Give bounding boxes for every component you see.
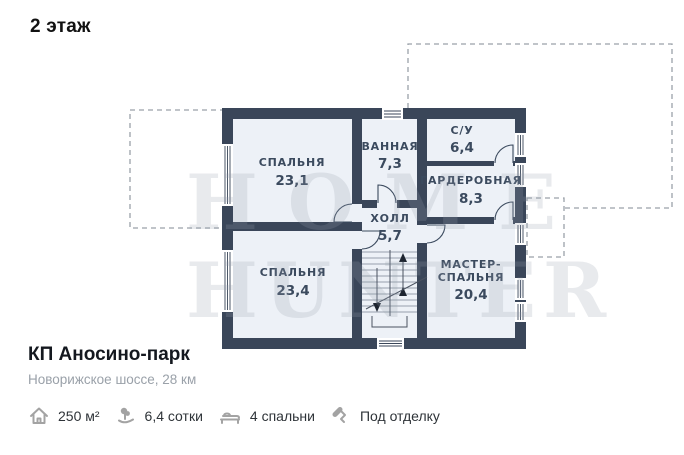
room-name: ХОЛЛ — [370, 212, 409, 225]
window — [515, 223, 526, 245]
vent-window — [382, 108, 403, 120]
house-icon — [28, 405, 50, 427]
room-name: СПАЛЬНЯ — [438, 271, 505, 284]
room-name: СПАЛЬНЯ — [260, 266, 327, 279]
window — [515, 133, 526, 157]
feature-plot-size: 6,4 сотки — [115, 405, 203, 427]
room-area: 7,3 — [378, 156, 402, 172]
room-area: 6,4 — [450, 140, 474, 156]
room-area: 5,7 — [378, 228, 402, 244]
room-name: С/У — [451, 124, 474, 137]
room-area: 20,4 — [454, 287, 487, 303]
window — [222, 250, 233, 312]
room-name: МАСТЕР- — [441, 258, 502, 271]
land-area-icon — [115, 405, 137, 427]
room-name: ГАРДЕРОБНАЯ — [420, 174, 522, 187]
room-name: ВАННАЯ — [361, 140, 418, 153]
feature-label: 6,4 сотки — [145, 408, 203, 424]
listing-location: Новорижское шоссе, 28 км — [28, 372, 196, 387]
window — [515, 278, 526, 300]
dashed-outline-left — [130, 110, 228, 228]
feature-label: 250 м² — [58, 408, 100, 424]
real-estate-floorplan-card: 2 этаж — [0, 0, 684, 455]
room-name: СПАЛЬНЯ — [259, 156, 326, 169]
feature-finish-state: Под отделку — [330, 405, 440, 427]
room-wc: С/У 6,4 — [450, 124, 474, 156]
feature-bedrooms: 4 спальни — [218, 405, 315, 427]
room-area: 8,3 — [459, 191, 483, 207]
window — [222, 144, 233, 206]
window — [377, 338, 404, 349]
paint-roller-icon — [330, 405, 352, 427]
room-area: 23,4 — [276, 283, 309, 299]
feature-label: 4 спальни — [250, 408, 315, 424]
window — [515, 302, 526, 322]
feature-label: Под отделку — [360, 408, 440, 424]
feature-row: 250 м² 6,4 сотки — [28, 405, 440, 427]
room-area: 23,1 — [275, 173, 308, 189]
feature-total-area: 250 м² — [28, 405, 100, 427]
listing-name: КП Аносино-парк — [28, 344, 190, 366]
bed-icon — [218, 405, 242, 427]
